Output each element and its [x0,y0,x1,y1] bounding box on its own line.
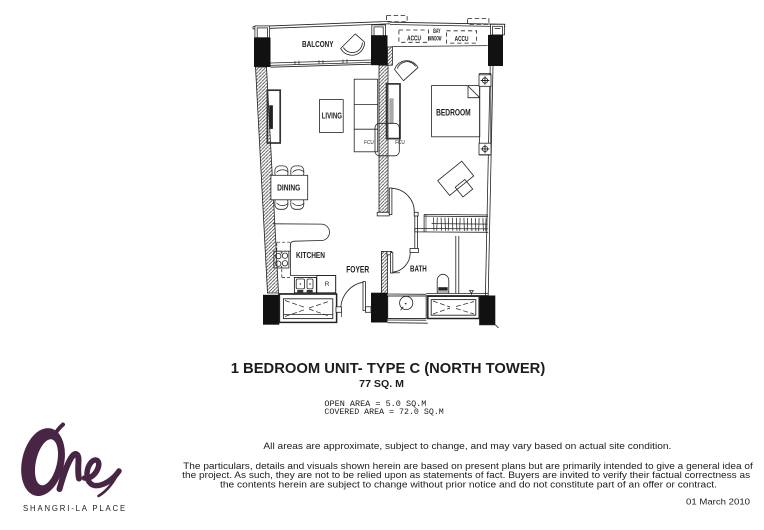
svg-text:BEDROOM: BEDROOM [436,107,471,118]
svg-text:FCU: FCU [395,140,405,146]
svg-text:R: R [325,281,330,288]
svg-text:ACCU: ACCU [455,34,469,43]
svg-text:LIVING: LIVING [322,112,342,121]
svg-text:01 March 2010: 01 March 2010 [686,497,750,507]
svg-text:KITCHEN: KITCHEN [296,251,325,260]
svg-text:BAY: BAY [433,28,441,35]
svg-text:WINDOW: WINDOW [428,35,441,42]
svg-text:COVERED AREA = 72.0 SQ.M: COVERED AREA = 72.0 SQ.M [324,407,443,417]
svg-text:FOYER: FOYER [346,264,369,274]
svg-text:BATH: BATH [410,263,427,273]
svg-text:DINING: DINING [277,184,300,193]
svg-text:the contents herein are subjec: the contents herein are subject to chang… [220,479,717,489]
svg-text:ACCU: ACCU [407,33,421,42]
svg-text:SHANGRI-LA PLACE: SHANGRI-LA PLACE [23,503,127,513]
svg-text:FCU: FCU [364,140,374,146]
svg-text:1 BEDROOM UNIT- TYPE C (NORTH: 1 BEDROOM UNIT- TYPE C (NORTH TOWER) [231,361,546,377]
svg-text:BALCONY: BALCONY [302,39,334,49]
svg-text:77 SQ. M: 77 SQ. M [359,379,404,390]
svg-text:All areas are approximate, sub: All areas are approximate, subject to ch… [263,441,671,451]
